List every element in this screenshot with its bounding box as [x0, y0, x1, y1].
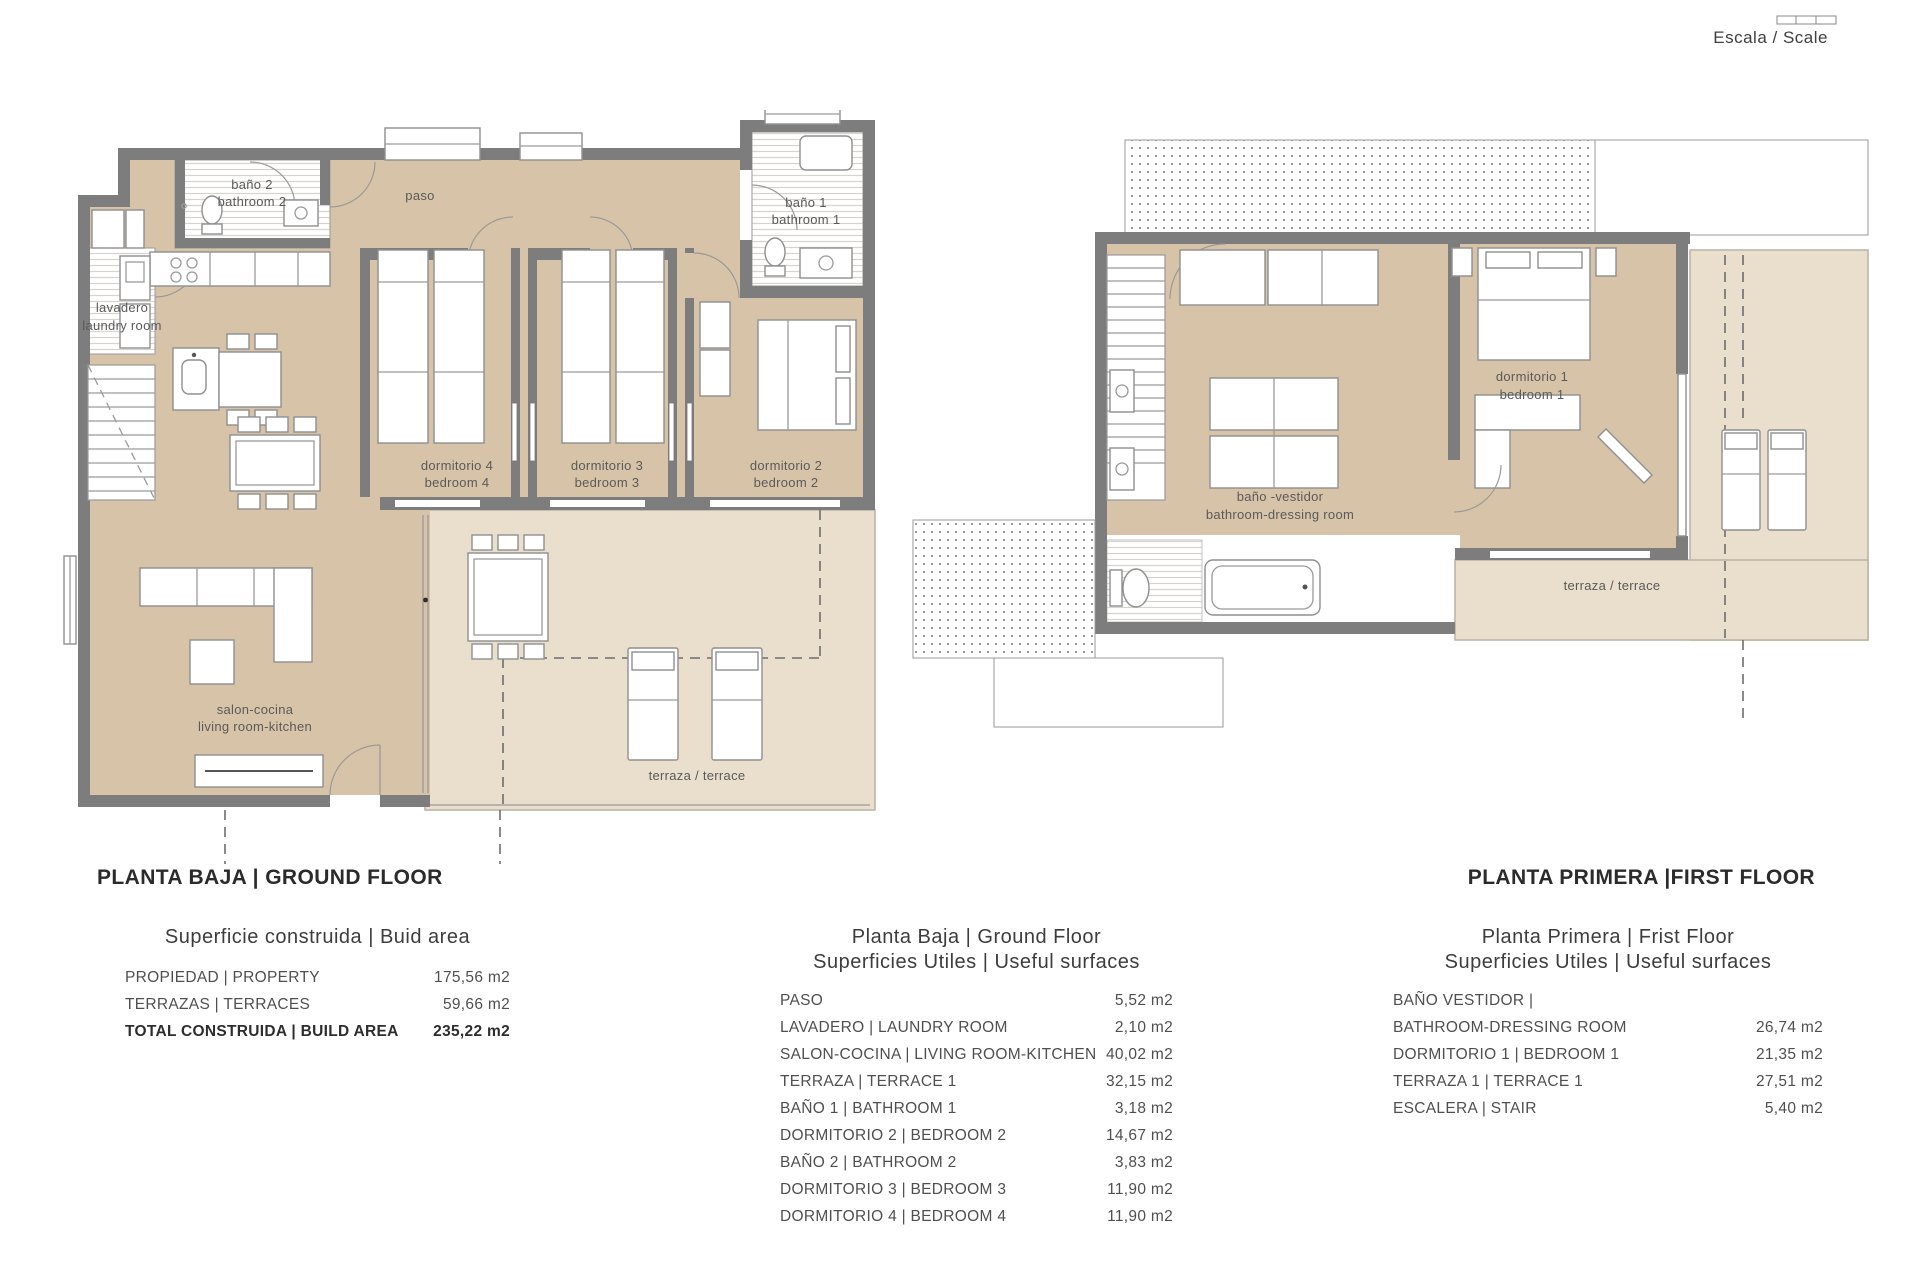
- table-row: SALON-COCINA | LIVING ROOM-KITCHEN40,02 …: [780, 1041, 1173, 1068]
- gf-bath1-label: baño 1: [785, 195, 827, 210]
- gf-dining-table-icon: [230, 417, 320, 509]
- table-row: BATHROOM-DRESSING ROOM26,74 m2: [1393, 1014, 1823, 1041]
- table-row: TOTAL CONSTRUIDA | BUILD AREA 235,22 m2: [125, 1018, 510, 1045]
- gf-bed4-label: dormitorio 4: [421, 458, 493, 473]
- row-label: SALON-COCINA | LIVING ROOM-KITCHEN: [780, 1041, 1097, 1068]
- row-label: BAÑO 2 | BATHROOM 2: [780, 1149, 957, 1176]
- row-label: TERRAZAS | TERRACES: [125, 991, 310, 1018]
- row-label: PROPIEDAD | PROPERTY: [125, 964, 320, 991]
- gf-stairs: [88, 365, 155, 500]
- gf-living-label: salon-cocina: [217, 702, 294, 717]
- gf-bed2-label: dormitorio 2: [750, 458, 822, 473]
- ground-useful-table: Planta Baja | Ground Floor Superficies U…: [780, 925, 1173, 1230]
- table-row: DORMITORIO 4 | BEDROOM 411,90 m2: [780, 1203, 1173, 1230]
- ff-bed1-label: bedroom 1: [1500, 387, 1565, 402]
- table-row: TERRAZA | TERRACE 132,15 m2: [780, 1068, 1173, 1095]
- row-value: 21,35 m2: [1756, 1041, 1823, 1068]
- gf-paso-label: paso: [405, 188, 434, 203]
- ground-useful-title: Planta Baja | Ground Floor: [780, 925, 1173, 950]
- ff-terrace-label: terraza / terrace: [1564, 578, 1661, 593]
- ground-floor-title: PLANTA BAJA | GROUND FLOOR: [97, 866, 443, 890]
- row-label: PASO: [780, 987, 823, 1014]
- row-value: 14,67 m2: [1106, 1122, 1173, 1149]
- built-area-table-title: Superficie construida | Buid area: [125, 925, 510, 950]
- scale-label: Escala / Scale: [1713, 28, 1828, 48]
- row-value: 5,52 m2: [1115, 987, 1173, 1014]
- gf-terrace-label: terraza / terrace: [649, 768, 746, 783]
- row-value: 32,15 m2: [1106, 1068, 1173, 1095]
- row-value: 235,22 m2: [433, 1018, 510, 1045]
- row-label: DORMITORIO 1 | BEDROOM 1: [1393, 1041, 1619, 1068]
- table-row: DORMITORIO 1 | BEDROOM 121,35 m2: [1393, 1041, 1823, 1068]
- ff-pergola-dotted: [913, 520, 1095, 658]
- first-floor-title: PLANTA PRIMERA |FIRST FLOOR: [1468, 866, 1815, 890]
- table-row: DORMITORIO 3 | BEDROOM 311,90 m2: [780, 1176, 1173, 1203]
- ff-bathtub-icon: [1205, 560, 1320, 615]
- ff-toilet-icon: [1110, 569, 1149, 607]
- row-value: 3,18 m2: [1115, 1095, 1173, 1122]
- row-value: 26,74 m2: [1756, 1014, 1823, 1041]
- ground-floor-plan: baño 2 bathroom 2 paso baño 1 bathroom 1…: [60, 110, 890, 870]
- first-useful-table: Planta Primera | Frist Floor Superficies…: [1393, 925, 1823, 1122]
- row-label: TERRAZA | TERRACE 1: [780, 1068, 957, 1095]
- first-useful-title: Planta Primera | Frist Floor: [1393, 925, 1823, 950]
- row-label: TOTAL CONSTRUIDA | BUILD AREA: [125, 1018, 399, 1045]
- row-label: ESCALERA | STAIR: [1393, 1095, 1537, 1122]
- gf-bath2-label: baño 2: [231, 177, 273, 192]
- row-label: DORMITORIO 3 | BEDROOM 3: [780, 1176, 1006, 1203]
- table-row: BAÑO 1 | BATHROOM 13,18 m2: [780, 1095, 1173, 1122]
- row-label: TERRAZA 1 | TERRACE 1: [1393, 1068, 1583, 1095]
- gf-bed2-label: bedroom 2: [754, 475, 819, 490]
- table-row: BAÑO VESTIDOR |: [1393, 987, 1823, 1014]
- ff-door-strip: [1448, 460, 1460, 535]
- table-row: DORMITORIO 2 | BEDROOM 214,67 m2: [780, 1122, 1173, 1149]
- table-row: ESCALERA | STAIR5,40 m2: [1393, 1095, 1823, 1122]
- ff-roof-dotted: [1125, 140, 1595, 235]
- row-value: 11,90 m2: [1107, 1176, 1173, 1203]
- table-row: PASO5,52 m2: [780, 987, 1173, 1014]
- first-useful-subtitle: Superficies Utiles | Useful surfaces: [1393, 950, 1823, 975]
- floor-plan-sheet: Escala / Scale: [0, 0, 1920, 1280]
- ff-roof-edge: [1595, 140, 1868, 235]
- row-value: 2,10 m2: [1115, 1014, 1173, 1041]
- row-value: 27,51 m2: [1756, 1068, 1823, 1095]
- ff-bath-label: baño -vestidor: [1237, 489, 1324, 504]
- row-label: DORMITORIO 4 | BEDROOM 4: [780, 1203, 1006, 1230]
- ff-bath-label: bathroom-dressing room: [1206, 507, 1354, 522]
- ff-pergola-edge: [994, 658, 1223, 727]
- gf-laundry-label: lavadero: [96, 300, 148, 315]
- row-value: 40,02 m2: [1106, 1041, 1173, 1068]
- row-value: 59,66 m2: [443, 991, 510, 1018]
- table-row: LAVADERO | LAUNDRY ROOM2,10 m2: [780, 1014, 1173, 1041]
- gf-porch-outline: [225, 810, 500, 864]
- gf-bed4-label: bedroom 4: [425, 475, 490, 490]
- row-label: BAÑO VESTIDOR |: [1393, 987, 1533, 1014]
- row-value: 5,40 m2: [1765, 1095, 1823, 1122]
- row-value: 11,90 m2: [1107, 1203, 1173, 1230]
- table-row: TERRAZA 1 | TERRACE 127,51 m2: [1393, 1068, 1823, 1095]
- gf-bath1-label: bathroom 1: [772, 212, 841, 227]
- table-row: TERRAZAS | TERRACES 59,66 m2: [125, 991, 510, 1018]
- built-area-table: Superficie construida | Buid area PROPIE…: [125, 925, 510, 1045]
- row-label: BATHROOM-DRESSING ROOM: [1393, 1014, 1627, 1041]
- table-row: PROPIEDAD | PROPERTY 175,56 m2: [125, 964, 510, 991]
- row-value: 3,83 m2: [1115, 1149, 1173, 1176]
- ground-useful-subtitle: Superficies Utiles | Useful surfaces: [780, 950, 1173, 975]
- gf-bath2-label: bathroom 2: [218, 194, 287, 209]
- scale-bar-icon: [1776, 14, 1838, 26]
- gf-bed3-label: dormitorio 3: [571, 458, 643, 473]
- gf-laundry-label: laundry room: [82, 318, 161, 333]
- row-value: 175,56 m2: [434, 964, 510, 991]
- row-label: LAVADERO | LAUNDRY ROOM: [780, 1014, 1008, 1041]
- ff-bed1-label: dormitorio 1: [1496, 369, 1568, 384]
- gf-bed3-label: bedroom 3: [575, 475, 640, 490]
- row-label: DORMITORIO 2 | BEDROOM 2: [780, 1122, 1006, 1149]
- first-floor-plan: baño -vestidor bathroom-dressing room do…: [880, 110, 1880, 870]
- table-row: BAÑO 2 | BATHROOM 23,83 m2: [780, 1149, 1173, 1176]
- row-label: BAÑO 1 | BATHROOM 1: [780, 1095, 957, 1122]
- gf-living-label: living room-kitchen: [198, 719, 312, 734]
